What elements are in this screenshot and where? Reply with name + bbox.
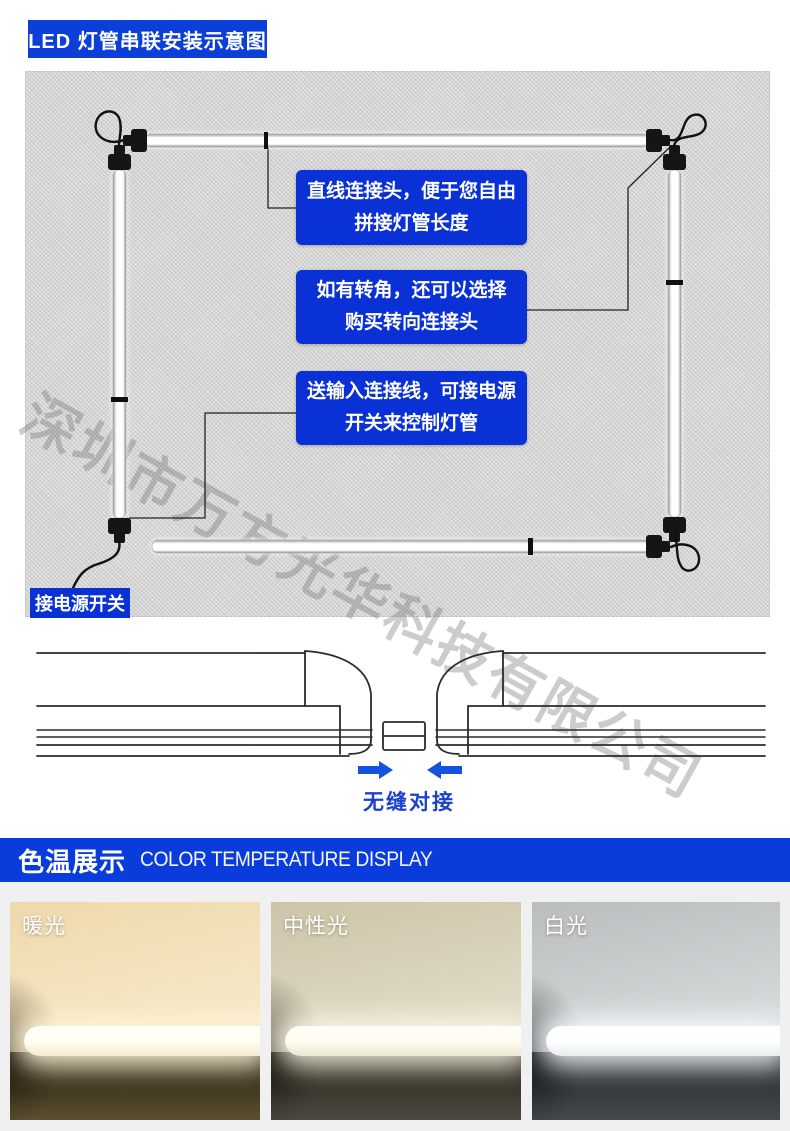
callout-corner-connector: 如有转角，还可以选择 购买转向连接头 [296,270,527,344]
banner-title-en: COLOR TEMPERATURE DISPLAY [140,848,432,872]
hanging-hook-icon [96,111,124,146]
callout-text-line: 开关来控制灯管 [345,408,478,440]
installation-diagram-panel: 直线连接头，便于您自由 拼接灯管长度 如有转角，还可以选择 购买转向连接头 送输… [25,71,770,617]
photo-warm-light: 暖光 [10,902,260,1120]
photo-label: 暖光 [22,910,66,940]
joint-connector-piece [383,722,425,750]
straight-connector-joint [111,397,128,402]
photo-label: 白光 [544,910,588,940]
left-tube-profile [37,651,372,756]
callout-input-cable: 送输入连接线，可接电源 开关来控制灯管 [296,371,527,445]
photo-label: 中性光 [283,910,349,940]
callout-text-line: 直线连接头，便于您自由 [307,176,516,208]
photo-led-tube [24,1026,260,1056]
seam-caption: 无缝对接 [0,786,790,816]
hanging-hook-icon [671,533,699,571]
callout-text-line: 如有转角，还可以选择 [316,275,506,307]
photo-led-tube [546,1026,780,1056]
callout2-pointer-line [527,147,670,310]
photo-led-tube [285,1026,521,1056]
led-tube-right [668,170,681,517]
callout-text-line: 送输入连接线，可接电源 [307,376,516,408]
led-tube-left [113,170,126,518]
hanging-hook-icon [670,115,706,146]
callout-straight-connector: 直线连接头，便于您自由 拼接灯管长度 [296,170,527,245]
seam-joint-drawing [0,640,790,810]
callout-text-line: 购买转向连接头 [345,307,478,339]
tube-layout-drawing [25,71,770,617]
callout3-pointer-line [129,413,296,518]
straight-connector-joint [528,538,533,555]
callout-text-line: 拼接灯管长度 [354,208,468,240]
color-temp-banner: 色温展示 COLOR TEMPERATURE DISPLAY [0,838,790,882]
photo-white-light: 白光 [532,902,780,1120]
power-cord [73,541,119,588]
seamless-joint-section: 无缝对接 [0,640,790,830]
led-tube-bottom [152,540,650,553]
callout1-pointer-line [268,147,296,208]
straight-connector-joint [666,280,683,285]
product-infographic-page: LED 灯管串联安装示意图 深圳市万方光华科技有限公司 [0,0,790,1131]
arrow-left-icon [427,761,462,779]
right-tube-profile [436,651,765,756]
led-tube-top [145,134,648,147]
photo-neutral-light: 中性光 [271,902,521,1120]
straight-connector-joint [264,132,268,149]
title-badge: LED 灯管串联安装示意图 [28,20,267,58]
arrow-right-icon [358,761,393,779]
banner-title-cn: 色温展示 [18,842,126,879]
power-switch-label: 接电源开关 [30,588,130,618]
